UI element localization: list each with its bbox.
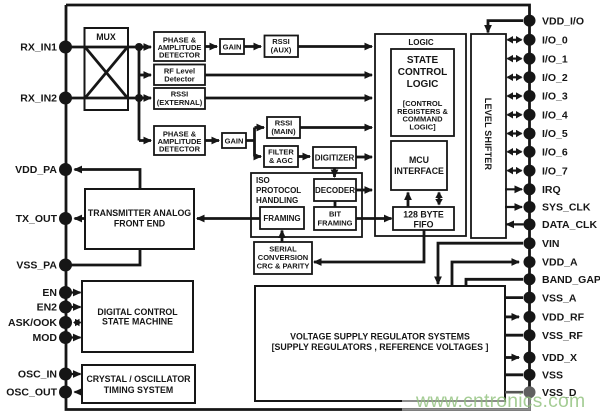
- svg-text:VOLTAGE SUPPLY REGULATOR SYSTE: VOLTAGE SUPPLY REGULATOR SYSTEMS: [290, 331, 470, 341]
- svg-text:(EXTERNAL): (EXTERNAL): [157, 98, 203, 107]
- svg-text:FRAMING: FRAMING: [263, 214, 300, 223]
- svg-text:VDD_PA: VDD_PA: [15, 164, 57, 176]
- svg-text:MCU: MCU: [409, 155, 429, 165]
- svg-text:I/O_5: I/O_5: [542, 128, 568, 140]
- svg-text:(AUX): (AUX): [271, 46, 292, 55]
- svg-text:(MAIN): (MAIN): [271, 127, 296, 136]
- svg-text:VDD_RF: VDD_RF: [542, 312, 585, 324]
- svg-text:Detector: Detector: [164, 75, 195, 84]
- svg-text:VIN: VIN: [542, 238, 560, 250]
- svg-text:LOGIC: LOGIC: [408, 38, 434, 47]
- svg-text:TX_OUT: TX_OUT: [16, 213, 58, 225]
- svg-text:EN: EN: [42, 287, 57, 299]
- svg-text:OSC_IN: OSC_IN: [18, 369, 57, 381]
- svg-text:STATE: STATE: [407, 55, 439, 66]
- svg-text:BAND_GAP: BAND_GAP: [542, 274, 600, 286]
- svg-text:TRANSMITTER ANALOG: TRANSMITTER ANALOG: [88, 208, 191, 218]
- svg-text:www.cntronics.com: www.cntronics.com: [415, 390, 585, 412]
- svg-text:[SUPPLY REGULATORS , REFERENCE: [SUPPLY REGULATORS , REFERENCE VOLTAGES …: [272, 342, 489, 352]
- svg-text:VSS_A: VSS_A: [542, 292, 577, 304]
- svg-text:FRONT END: FRONT END: [114, 218, 165, 228]
- svg-text:LEVEL SHIFTER: LEVEL SHIFTER: [483, 98, 493, 171]
- svg-text:I/O_0: I/O_0: [542, 35, 568, 47]
- svg-text:LOGIC: LOGIC: [407, 79, 439, 90]
- svg-text:VSS_RF: VSS_RF: [542, 330, 583, 342]
- svg-text:MUX: MUX: [96, 32, 116, 42]
- svg-text:I/O_2: I/O_2: [542, 72, 568, 84]
- svg-text:ISO: ISO: [256, 176, 270, 185]
- svg-text:CRC & PARITY: CRC & PARITY: [257, 262, 310, 271]
- svg-text:SYS_CLK: SYS_CLK: [542, 202, 591, 214]
- svg-text:DETECTOR: DETECTOR: [159, 51, 201, 60]
- svg-text:VSS_PA: VSS_PA: [16, 260, 57, 272]
- svg-text:DIGITAL CONTROL: DIGITAL CONTROL: [97, 307, 178, 317]
- svg-text:VDD_A: VDD_A: [542, 257, 578, 269]
- svg-text:ASK/OOK: ASK/OOK: [8, 317, 57, 329]
- svg-text:HANDLING: HANDLING: [256, 196, 298, 205]
- svg-text:DIGITIZER: DIGITIZER: [315, 154, 355, 163]
- svg-text:CRYSTAL / OSCILLATOR: CRYSTAL / OSCILLATOR: [86, 374, 191, 384]
- svg-text:GAIN: GAIN: [223, 43, 242, 52]
- svg-text:VDD_X: VDD_X: [542, 352, 577, 364]
- svg-text:VSS: VSS: [542, 370, 563, 382]
- svg-text:CONTROL: CONTROL: [398, 67, 447, 78]
- svg-text:STATE MACHINE: STATE MACHINE: [102, 317, 173, 327]
- svg-text:DECODER: DECODER: [315, 186, 355, 195]
- svg-text:LOGIC]: LOGIC]: [409, 122, 436, 131]
- svg-text:128 BYTE: 128 BYTE: [403, 210, 444, 220]
- svg-text:I/O_3: I/O_3: [542, 91, 568, 103]
- svg-text:PROTOCOL: PROTOCOL: [256, 186, 301, 195]
- svg-text:RX_IN2: RX_IN2: [20, 93, 57, 105]
- svg-text:RX_IN1: RX_IN1: [20, 42, 57, 54]
- svg-text:I/O_7: I/O_7: [542, 165, 568, 177]
- svg-text:IRQ: IRQ: [542, 184, 561, 196]
- svg-text:INTERFACE: INTERFACE: [394, 166, 444, 176]
- svg-text:I/O_6: I/O_6: [542, 147, 568, 159]
- svg-text:FRAMING: FRAMING: [318, 219, 353, 228]
- svg-text:I/O_4: I/O_4: [542, 110, 568, 122]
- svg-text:& AGC: & AGC: [269, 156, 293, 165]
- svg-text:BIT: BIT: [329, 210, 342, 219]
- svg-text:FIFO: FIFO: [413, 220, 433, 230]
- svg-text:MOD: MOD: [33, 332, 58, 344]
- svg-text:DATA_CLK: DATA_CLK: [542, 219, 597, 231]
- svg-text:VDD_I/O: VDD_I/O: [542, 15, 584, 27]
- svg-text:EN2: EN2: [37, 302, 58, 314]
- svg-text:TIMING SYSTEM: TIMING SYSTEM: [104, 385, 173, 395]
- svg-text:GAIN: GAIN: [225, 137, 244, 146]
- svg-text:I/O_1: I/O_1: [542, 53, 568, 65]
- svg-text:OSC_OUT: OSC_OUT: [6, 387, 57, 399]
- svg-text:DETECTOR: DETECTOR: [159, 145, 201, 154]
